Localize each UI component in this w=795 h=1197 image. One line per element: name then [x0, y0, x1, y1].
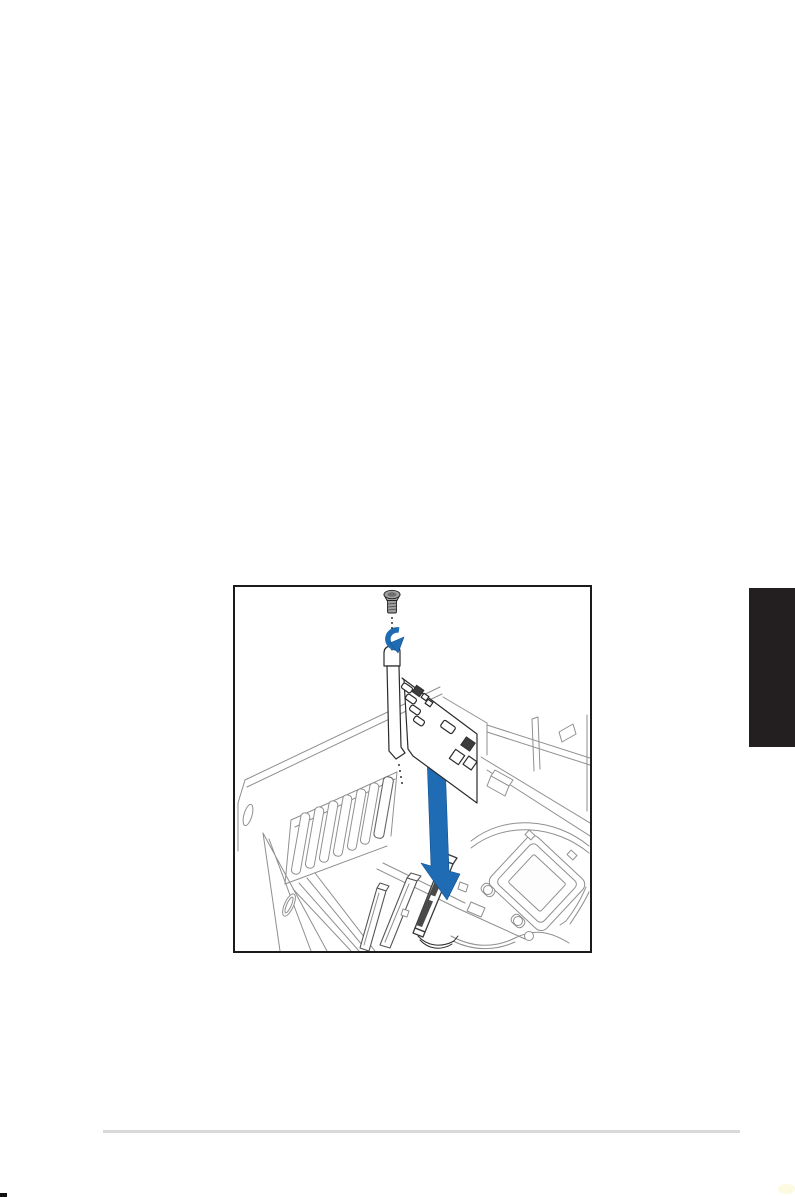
- page-corner-smudge: [778, 1184, 795, 1194]
- screw-dotted-line: [391, 617, 393, 629]
- motherboard-expansion-slots: [360, 854, 485, 951]
- installation-figure-drawing: [235, 587, 590, 951]
- card-bracket: [384, 645, 405, 759]
- chassis-rear-slot-openings: [285, 772, 397, 884]
- page-corner-mark: [0, 1193, 7, 1197]
- installation-figure: [233, 585, 592, 953]
- cpu-socket: [471, 823, 589, 934]
- alignment-dotted-line: [398, 764, 403, 784]
- manual-page: { "page": { "width_px": 795, "height_px"…: [0, 0, 795, 1197]
- chapter-side-tab: [749, 588, 795, 747]
- footer-divider: [103, 1130, 740, 1133]
- screw: [384, 590, 400, 629]
